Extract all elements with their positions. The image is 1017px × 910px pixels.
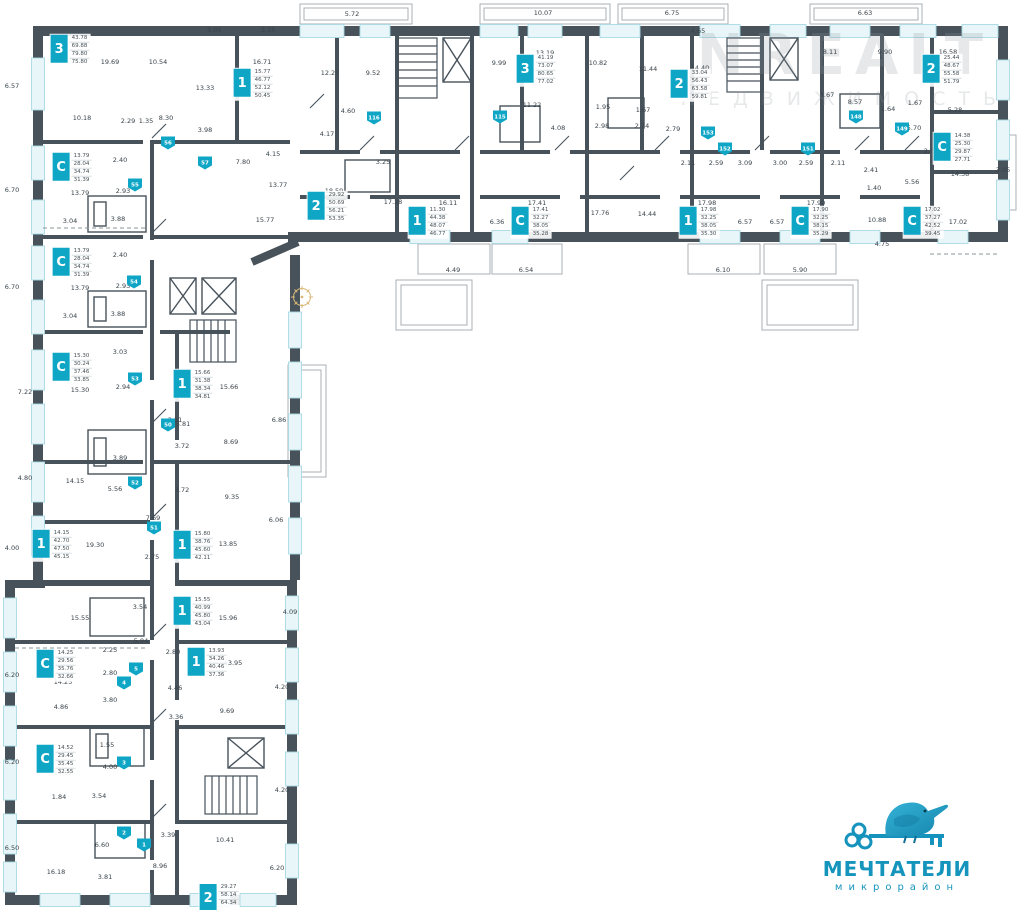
unit-area-list: 11.3044.3848.0746.77 — [428, 207, 448, 238]
dimension-label: 3.04 — [63, 218, 77, 225]
dimension-label: 19.69 — [101, 59, 120, 66]
apartment-unit-C: C17.9032.2538.1535.29 — [791, 206, 832, 239]
dimension-label: 6.10 — [716, 267, 730, 274]
unit-type-badge: C — [37, 650, 54, 678]
apartment-number-marker: 1 — [137, 839, 151, 852]
dimension-label: 3.54 — [133, 604, 147, 611]
dimension-label: 3.95 — [996, 167, 1010, 174]
dimension-label: 2.93 — [116, 188, 130, 195]
dimension-label: 3.00 — [773, 160, 787, 167]
unit-type-badge: C — [934, 133, 951, 161]
dimension-label: 1.55 — [100, 742, 114, 749]
apartment-number-marker: 151 — [801, 143, 815, 156]
unit-type-badge: C — [512, 207, 529, 235]
apartment-unit-1: 115.5540.9945.8043.04 — [173, 596, 214, 629]
unit-type-badge: 3 — [517, 55, 534, 83]
apartment-number-marker: 50 — [161, 419, 175, 432]
apartment-unit-C: C17.4132.2738.0535.28 — [511, 206, 552, 239]
apartment-unit-C: C13.7928.0434.7431.39 — [52, 152, 93, 185]
dimension-label: 2.59 — [709, 160, 723, 167]
dimension-label: 6.06 — [269, 517, 283, 524]
dimension-label: 1.35 — [139, 118, 153, 125]
dimension-label: 15.66 — [220, 384, 239, 391]
dimension-label: 9.52 — [366, 70, 380, 77]
dimension-label: 3.03 — [113, 349, 127, 356]
unit-area-list: 15.3030.2437.4633.85 — [72, 353, 92, 384]
dimension-label: 8.30 — [159, 115, 173, 122]
dimension-label: 4.17 — [320, 131, 334, 138]
dimension-label: 3.36 — [169, 714, 183, 721]
dimension-label: 3.35 — [261, 27, 275, 34]
dimension-label: 2.11 — [831, 160, 845, 167]
unit-area-list: 41.1973.0780.6577.02 — [536, 55, 556, 86]
dimension-label: 13.85 — [219, 541, 238, 548]
dimension-label: 2.75 — [145, 554, 159, 561]
unit-type-badge: C — [792, 207, 809, 235]
dimension-label: 2.29 — [121, 118, 135, 125]
dimension-label: 4.00 — [5, 545, 19, 552]
unit-area-list: 33.0456.4363.5859.81 — [690, 70, 710, 101]
apartment-unit-3: 341.1973.0780.6577.02 — [516, 54, 557, 87]
unit-type-badge: C — [53, 248, 70, 276]
apartment-number-marker: 56 — [161, 137, 175, 150]
dimension-label: 12.27 — [321, 70, 340, 77]
dimension-label: 2.41 — [864, 167, 878, 174]
brand-name: МЕЧТАТЕЛИ — [822, 858, 972, 880]
apartment-number-marker: 57 — [198, 157, 212, 170]
dimension-label: 13.33 — [196, 85, 215, 92]
dimension-label: 4.15 — [266, 151, 280, 158]
dimension-label: 4.08 — [551, 125, 565, 132]
unit-type-badge: 1 — [680, 207, 697, 235]
dimension-label: 11.44 — [639, 66, 658, 73]
apartment-number-marker: 116 — [367, 112, 381, 125]
dimension-label: 1.84 — [52, 794, 66, 801]
apartment-unit-C: C17.0237.2742.5239.45 — [903, 206, 944, 239]
dimension-label: 6.57 — [738, 219, 752, 226]
dimension-label: 15.30 — [71, 387, 90, 394]
floorplan-canvas: NREALT НЕДВИЖИМОСТЬ 5.7210.076.756.634.6… — [0, 0, 1017, 910]
dimension-label: 8.57 — [848, 99, 862, 106]
dimension-label: 4.09 — [283, 609, 297, 616]
dimension-label: 10.41 — [216, 837, 235, 844]
apartment-number-marker: 3 — [117, 757, 131, 770]
dimension-label: 3.72 — [175, 443, 189, 450]
dimension-label: 2.80 — [166, 649, 180, 656]
unit-area-list: 15.8038.7645.6042.11 — [193, 531, 213, 562]
dimension-label: 19.30 — [86, 542, 105, 549]
unit-area-list: 17.9032.2538.1535.29 — [811, 207, 831, 238]
apartment-unit-1: 117.9832.2538.0535.30 — [679, 206, 720, 239]
dimension-label: 14.44 — [638, 211, 657, 218]
dimension-label: 6.70 — [5, 284, 19, 291]
dimension-label: 13.79 — [71, 285, 90, 292]
unit-area-list: 14.1542.7047.5045.15 — [52, 530, 72, 561]
dimension-label: 1.67 — [908, 100, 922, 107]
apartment-unit-1: 115.8038.7645.6042.11 — [173, 530, 214, 563]
dimension-label: 6.20 — [5, 672, 19, 679]
unit-area-list: 15.5540.9945.8043.04 — [193, 597, 213, 628]
dimension-label: 15.77 — [256, 217, 275, 224]
dimension-label: 4.75 — [875, 241, 889, 248]
dimension-label: 3.05 — [207, 27, 221, 34]
dimension-label: 17.38 — [384, 199, 403, 206]
apartment-unit-1: 113.9334.2640.4637.36 — [187, 647, 228, 680]
unit-type-badge: C — [53, 353, 70, 381]
unit-area-list: 14.5229.4535.4532.55 — [56, 745, 76, 776]
apartment-unit-C: C14.2529.5635.7632.66 — [36, 649, 77, 682]
unit-area-list: 17.0237.2742.5239.45 — [923, 207, 943, 238]
dimension-label: 6.20 — [5, 759, 19, 766]
dimension-label: 8.69 — [224, 439, 238, 446]
unit-type-badge: 1 — [188, 648, 205, 676]
apartment-number-marker: 4 — [117, 677, 131, 690]
apartment-number-marker: 51 — [147, 522, 161, 535]
dimension-label: 3.04 — [63, 313, 77, 320]
unit-type-badge: 1 — [234, 69, 251, 97]
dimension-label: 7.69 — [146, 515, 160, 522]
dimension-label: 10.82 — [589, 60, 608, 67]
dimension-label: 9.69 — [220, 708, 234, 715]
dimension-label: 6.20 — [270, 865, 284, 872]
apartment-number-marker: 5 — [129, 663, 143, 676]
dimension-label: 3.72 — [175, 487, 189, 494]
dimension-label: 2.74 — [635, 123, 649, 130]
dimension-label: 17.76 — [591, 210, 610, 217]
dimension-label: 3.80 — [103, 697, 117, 704]
apartment-number-marker: 152 — [718, 143, 732, 156]
logo-bird-key-icon — [832, 790, 962, 854]
dimension-label: 6.54 — [519, 267, 533, 274]
dimension-label: 8.96 — [153, 863, 167, 870]
unit-type-badge: C — [904, 207, 921, 235]
dimension-label: 6.75 — [665, 10, 679, 17]
unit-area-list: 15.7746.7752.1250.45 — [253, 69, 273, 100]
unit-area-list: 15.6631.3838.3434.81 — [193, 370, 213, 401]
dimension-label: 16.18 — [47, 869, 66, 876]
dimension-label: 5.90 — [793, 267, 807, 274]
apartment-unit-3: 343.7869.8879.8075.80 — [50, 34, 91, 67]
dimension-label: 3.89 — [113, 455, 127, 462]
dimension-label: 4.20 — [275, 787, 289, 794]
dimension-label: 7.80 — [236, 159, 250, 166]
dimension-label: 3.88 — [111, 311, 125, 318]
dimension-label: 6.63 — [858, 10, 872, 17]
dimension-label: 6.60 — [95, 842, 109, 849]
dimension-label: 4.46 — [168, 685, 182, 692]
dimension-label: 2.98 — [595, 123, 609, 130]
dimension-label: 3.25 — [376, 159, 390, 166]
unit-area-list: 17.4132.2738.0535.28 — [531, 207, 551, 238]
dimension-label: 5.94 — [134, 638, 148, 645]
dimension-label: 2.79 — [666, 126, 680, 133]
dimension-label: 4.49 — [446, 267, 460, 274]
apartment-unit-2: 229.9250.6956.2153.35 — [307, 191, 348, 224]
dimension-label: 2.94 — [116, 384, 130, 391]
dimension-label: 8.11 — [823, 49, 837, 56]
dimension-label: 9.99 — [492, 60, 506, 67]
apartment-number-marker: 149 — [895, 123, 909, 136]
dimension-label: 5.56 — [108, 486, 122, 493]
dimension-label: 14.15 — [66, 478, 85, 485]
unit-area-list: 13.9334.2640.4637.36 — [207, 648, 227, 679]
dimension-label: 13.77 — [269, 182, 288, 189]
dimension-label: 1.95 — [596, 104, 610, 111]
dimension-label: 13.79 — [71, 190, 90, 197]
dimension-label: 3.09 — [738, 160, 752, 167]
dimension-label: 10.88 — [868, 217, 887, 224]
dimension-label: 3.98 — [198, 127, 212, 134]
dimension-label: 15.55 — [71, 615, 90, 622]
unit-type-badge: 1 — [174, 370, 191, 398]
unit-type-badge: 1 — [174, 597, 191, 625]
unit-area-list: 13.7928.0434.7431.39 — [72, 153, 92, 184]
dimension-label: 1.40 — [867, 185, 881, 192]
unit-area-list: 13.7928.0434.7431.39 — [72, 248, 92, 279]
dimension-label: 3.81 — [98, 874, 112, 881]
dimension-label: 4.80 — [18, 475, 32, 482]
unit-type-badge: 2 — [200, 884, 217, 910]
unit-area-list: 14.2529.5635.7632.66 — [56, 650, 76, 681]
apartment-unit-C: C14.3825.3029.8727.71 — [933, 132, 974, 165]
unit-area-list: 29.9250.6956.2153.35 — [327, 192, 347, 223]
apartment-unit-2: 233.0456.4363.5859.81 — [670, 69, 711, 102]
unit-area-list: 25.4448.6755.5851.79 — [942, 55, 962, 86]
dimension-label: 16.71 — [253, 59, 272, 66]
apartment-unit-2: 229.2758.1464.34 — [199, 883, 240, 910]
dimension-label: 2.40 — [113, 252, 127, 259]
unit-type-badge: 1 — [33, 530, 50, 558]
dimension-label: 6.50 — [5, 845, 19, 852]
apartment-unit-2: 225.4448.6755.5851.79 — [922, 54, 963, 87]
dimension-label: 3.88 — [111, 216, 125, 223]
dimension-label: 1.67 — [636, 107, 650, 114]
unit-area-list: 14.3825.3029.8727.71 — [953, 133, 973, 164]
dimension-label: 3.67 — [820, 92, 834, 99]
brand-subtitle: микрорайон — [822, 882, 972, 893]
dimension-label: 2.25 — [103, 647, 117, 654]
unit-type-badge: 1 — [409, 207, 426, 235]
dimension-label: 6.36 — [490, 219, 504, 226]
dimension-label: 1.64 — [881, 106, 895, 113]
dimension-label: 4.00 — [103, 764, 117, 771]
dimension-label: 2.11 — [681, 160, 695, 167]
unit-area-list: 29.2758.1464.34 — [219, 884, 239, 907]
dimension-label: 11.22 — [523, 102, 542, 109]
dimension-label: 2.59 — [799, 160, 813, 167]
unit-type-badge: 3 — [51, 35, 68, 63]
dimension-label: 5.72 — [345, 11, 359, 18]
apartment-number-marker: 2 — [117, 827, 131, 840]
apartment-number-marker: 153 — [701, 127, 715, 140]
dimension-label: 3.54 — [92, 793, 106, 800]
dimension-label: 7.22 — [18, 389, 32, 396]
dimension-label: 10.54 — [149, 59, 168, 66]
dimension-label: 5.56 — [905, 179, 919, 186]
dimension-label: 15.96 — [219, 615, 238, 622]
unit-type-badge: 2 — [671, 70, 688, 98]
dimension-label: 2.40 — [113, 157, 127, 164]
apartment-number-marker: 148 — [849, 111, 863, 124]
dimension-label: 17.02 — [949, 219, 968, 226]
apartment-number-marker: 115 — [493, 111, 507, 124]
dimension-label: 9.90 — [878, 49, 892, 56]
dimension-label: 4.86 — [54, 704, 68, 711]
apartment-unit-1: 111.3044.3848.0746.77 — [408, 206, 449, 239]
dimension-label: 4.60 — [341, 108, 355, 115]
dimension-label: 14.38 — [951, 171, 970, 178]
apartment-unit-1: 115.6631.3838.3434.81 — [173, 369, 214, 402]
apartment-number-marker: 52 — [128, 477, 142, 490]
unit-type-badge: C — [53, 153, 70, 181]
apartment-unit-1: 115.7746.7752.1250.45 — [233, 68, 274, 101]
apartment-unit-C: C15.3030.2437.4633.85 — [52, 352, 93, 385]
apartment-unit-C: C14.5229.4535.4532.55 — [36, 744, 77, 777]
labels-layer: 5.7210.076.756.634.6519.6910.5413.3310.1… — [0, 0, 1017, 910]
unit-type-badge: 1 — [174, 531, 191, 559]
dimension-label: 10.18 — [73, 115, 92, 122]
dimension-label: 3.39 — [161, 832, 175, 839]
brand-logo: МЕЧТАТЕЛИ микрорайон — [822, 790, 972, 893]
dimension-label: 6.57 — [770, 219, 784, 226]
unit-type-badge: 2 — [308, 192, 325, 220]
dimension-label: 9.35 — [225, 494, 239, 501]
dimension-label: 2.80 — [103, 670, 117, 677]
dimension-label: 4.20 — [275, 684, 289, 691]
dimension-label: 6.86 — [272, 417, 286, 424]
unit-area-list: 17.9832.2538.0535.30 — [699, 207, 719, 238]
unit-type-badge: 2 — [923, 55, 940, 83]
dimension-label: 4.65 — [691, 28, 705, 35]
unit-type-badge: C — [37, 745, 54, 773]
dimension-label: 6.57 — [5, 83, 19, 90]
apartment-unit-1: 114.1542.7047.5045.15 — [32, 529, 73, 562]
unit-area-list: 43.7869.8879.8075.80 — [70, 35, 90, 66]
dimension-label: 5.28 — [948, 107, 962, 114]
dimension-label: 10.07 — [534, 10, 553, 17]
dimension-label: 6.70 — [5, 187, 19, 194]
apartment-unit-C: C13.7928.0434.7431.39 — [52, 247, 93, 280]
